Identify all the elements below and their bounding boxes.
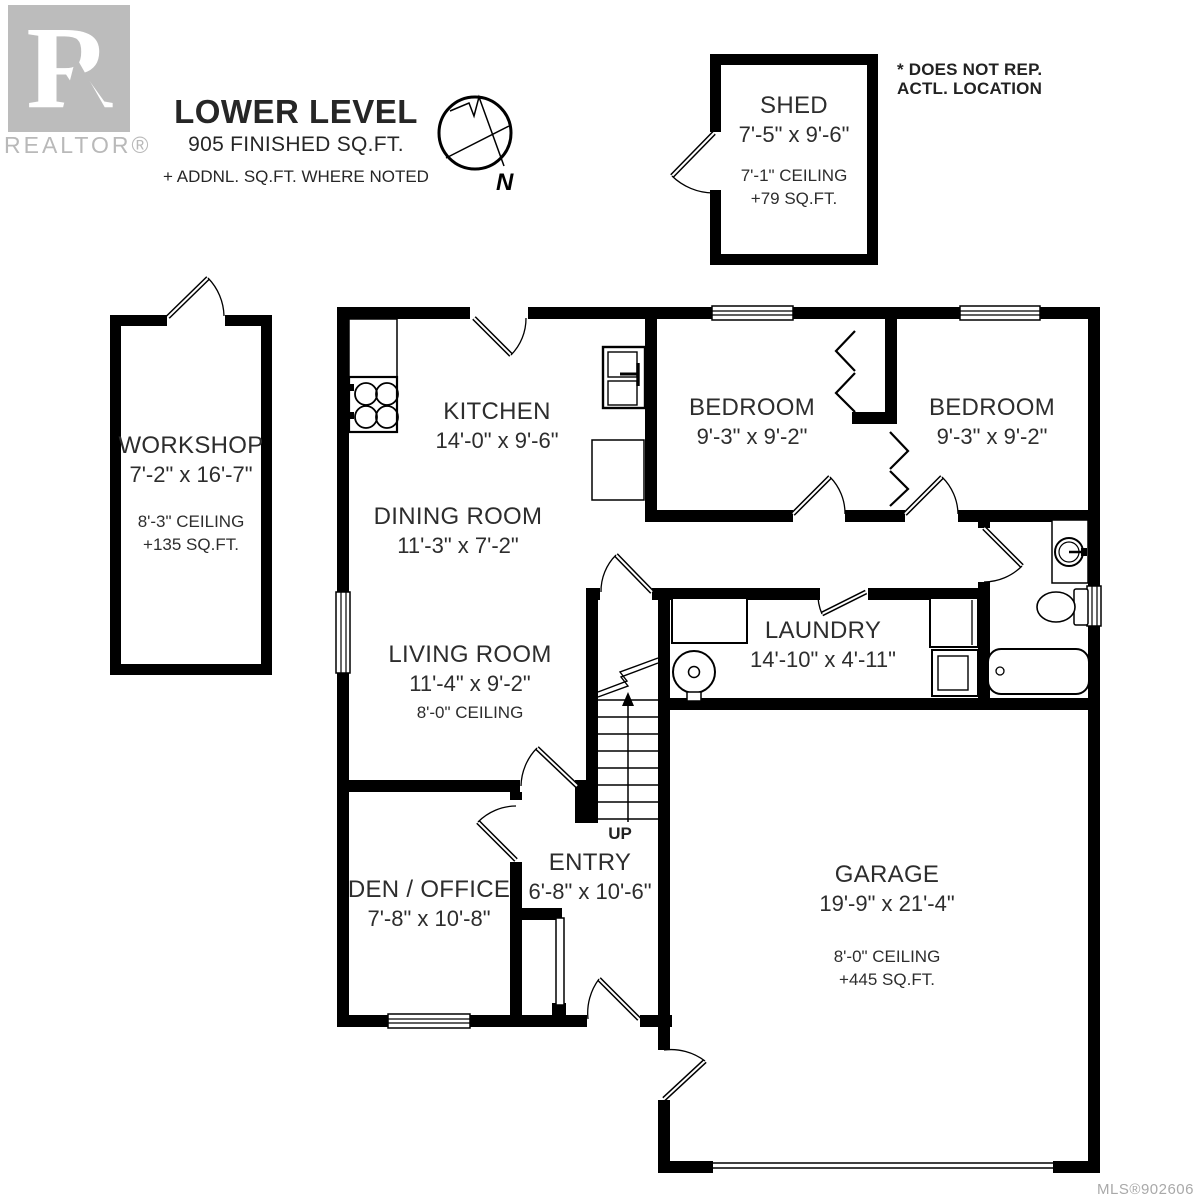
water-heater-icon	[673, 651, 715, 701]
kitchen-label: KITCHEN 14'-0" x 9'-6"	[435, 398, 558, 454]
realtor-logo: R	[8, 5, 130, 132]
room-area: +445 SQ.FT.	[819, 970, 954, 990]
room-dims: 9'-3" x 9'-2"	[689, 424, 815, 450]
bedroom-right-door	[905, 477, 958, 514]
bedroom-left-door	[793, 477, 845, 514]
stairs	[598, 658, 658, 822]
room-dims: 7'-8" x 10'-8"	[348, 906, 510, 932]
bedroom-left-label: BEDROOM 9'-3" x 9'-2"	[689, 394, 815, 450]
room-name: SHED	[739, 92, 850, 120]
room-ceiling: 8'-0" CEILING	[819, 947, 954, 967]
workshop-door	[168, 278, 224, 317]
room-name: GARAGE	[819, 861, 954, 889]
shed-door	[672, 133, 714, 193]
closet-bifold-left	[836, 331, 855, 412]
compass-icon: N	[439, 97, 514, 196]
fridge-icon	[603, 347, 645, 408]
realtor-logo-text: REALTOR®	[4, 132, 144, 159]
room-dims: 7'-2" x 16'-7"	[118, 462, 263, 488]
living-room-window	[336, 592, 350, 673]
workshop-label: WORKSHOP 7'-2" x 16'-7" 8'-3" CEILING +1…	[118, 432, 263, 555]
bathroom-window	[1087, 586, 1101, 626]
kitchen-counter	[349, 319, 397, 377]
room-name: KITCHEN	[435, 398, 558, 426]
bathroom-sink-icon	[1052, 520, 1088, 583]
bedroom-right-window	[960, 306, 1040, 320]
plan-title: LOWER LEVEL	[163, 94, 429, 130]
dining-room-label: DINING ROOM 11'-3" x 7'-2"	[374, 503, 543, 559]
kitchen-back-door	[474, 318, 526, 355]
room-ceiling: 8'-0" CEILING	[388, 703, 551, 723]
realtor-logo-glyph: R	[8, 5, 130, 132]
stairs-up-label: UP	[608, 824, 632, 844]
mls-number: MLS®902606	[1097, 1181, 1194, 1198]
room-name: ENTRY	[528, 849, 651, 877]
laundry-door	[818, 592, 866, 614]
washer-icon	[672, 598, 747, 643]
entry-label: ENTRY 6'-8" x 10'-6"	[528, 849, 651, 905]
room-name: DINING ROOM	[374, 503, 543, 531]
bedroom-left-window	[712, 306, 793, 320]
front-door	[588, 979, 639, 1019]
room-name: WORKSHOP	[118, 432, 263, 460]
room-ceiling: 8'-3" CEILING	[118, 512, 263, 532]
toilet-icon	[1037, 589, 1088, 625]
room-dims: 7'-5" x 9'-6"	[739, 122, 850, 148]
room-name: LAUNDRY	[750, 617, 896, 645]
room-dims: 9'-3" x 9'-2"	[929, 424, 1055, 450]
shed-location-disclaimer: * DOES NOT REP. ACTL. LOCATION	[897, 60, 1042, 98]
garage-door-opening	[713, 1163, 1053, 1168]
den-window	[388, 1014, 470, 1028]
plan-finished-area: 905 FINISHED SQ.FT.	[163, 133, 429, 157]
plan-area-note: + ADDNL. SQ.FT. WHERE NOTED	[163, 167, 429, 187]
living-room-label: LIVING ROOM 11'-4" x 9'-2" 8'-0" CEILING	[388, 641, 551, 723]
room-dims: 11'-3" x 7'-2"	[374, 533, 543, 559]
plan-title-block: LOWER LEVEL 905 FINISHED SQ.FT. + ADDNL.…	[163, 94, 429, 187]
entry-closet-door	[556, 918, 564, 1005]
bedroom-right-label: BEDROOM 9'-3" x 9'-2"	[929, 394, 1055, 450]
room-ceiling: 7'-1" CEILING	[739, 166, 850, 186]
room-name: LIVING ROOM	[388, 641, 551, 669]
room-dims: 14'-10" x 4'-11"	[750, 647, 896, 673]
disclaimer-line1: * DOES NOT REP.	[897, 60, 1042, 79]
kitchen-lower-counter	[592, 440, 644, 500]
shed-label: SHED 7'-5" x 9'-6" 7'-1" CEILING +79 SQ.…	[739, 92, 850, 209]
closet-bifold-right	[890, 432, 908, 506]
room-area: +135 SQ.FT.	[118, 535, 263, 555]
room-name: DEN / OFFICE	[348, 876, 510, 904]
dryer-icon	[930, 598, 978, 647]
living-room-door	[521, 748, 577, 786]
stairwell-door	[601, 555, 652, 592]
room-area: +79 SQ.FT.	[739, 189, 850, 209]
stove-icon	[349, 377, 398, 432]
laundry-label: LAUNDRY 14'-10" x 4'-11"	[750, 617, 896, 673]
garage-side-door	[664, 1050, 705, 1099]
den-office-label: DEN / OFFICE 7'-8" x 10'-8"	[348, 876, 510, 932]
laundry-sink-icon	[932, 650, 978, 696]
room-dims: 6'-8" x 10'-6"	[528, 879, 651, 905]
den-door	[478, 806, 516, 860]
disclaimer-line2: ACTL. LOCATION	[897, 79, 1042, 98]
room-dims: 19'-9" x 21'-4"	[819, 891, 954, 917]
room-dims: 11'-4" x 9'-2"	[388, 671, 551, 697]
bathroom-door	[984, 528, 1022, 582]
garage-label: GARAGE 19'-9" x 21'-4" 8'-0" CEILING +44…	[819, 861, 954, 990]
compass-north-label: N	[496, 169, 514, 196]
bathtub-icon	[988, 649, 1089, 694]
room-dims: 14'-0" x 9'-6"	[435, 428, 558, 454]
room-name: BEDROOM	[929, 394, 1055, 422]
room-name: BEDROOM	[689, 394, 815, 422]
